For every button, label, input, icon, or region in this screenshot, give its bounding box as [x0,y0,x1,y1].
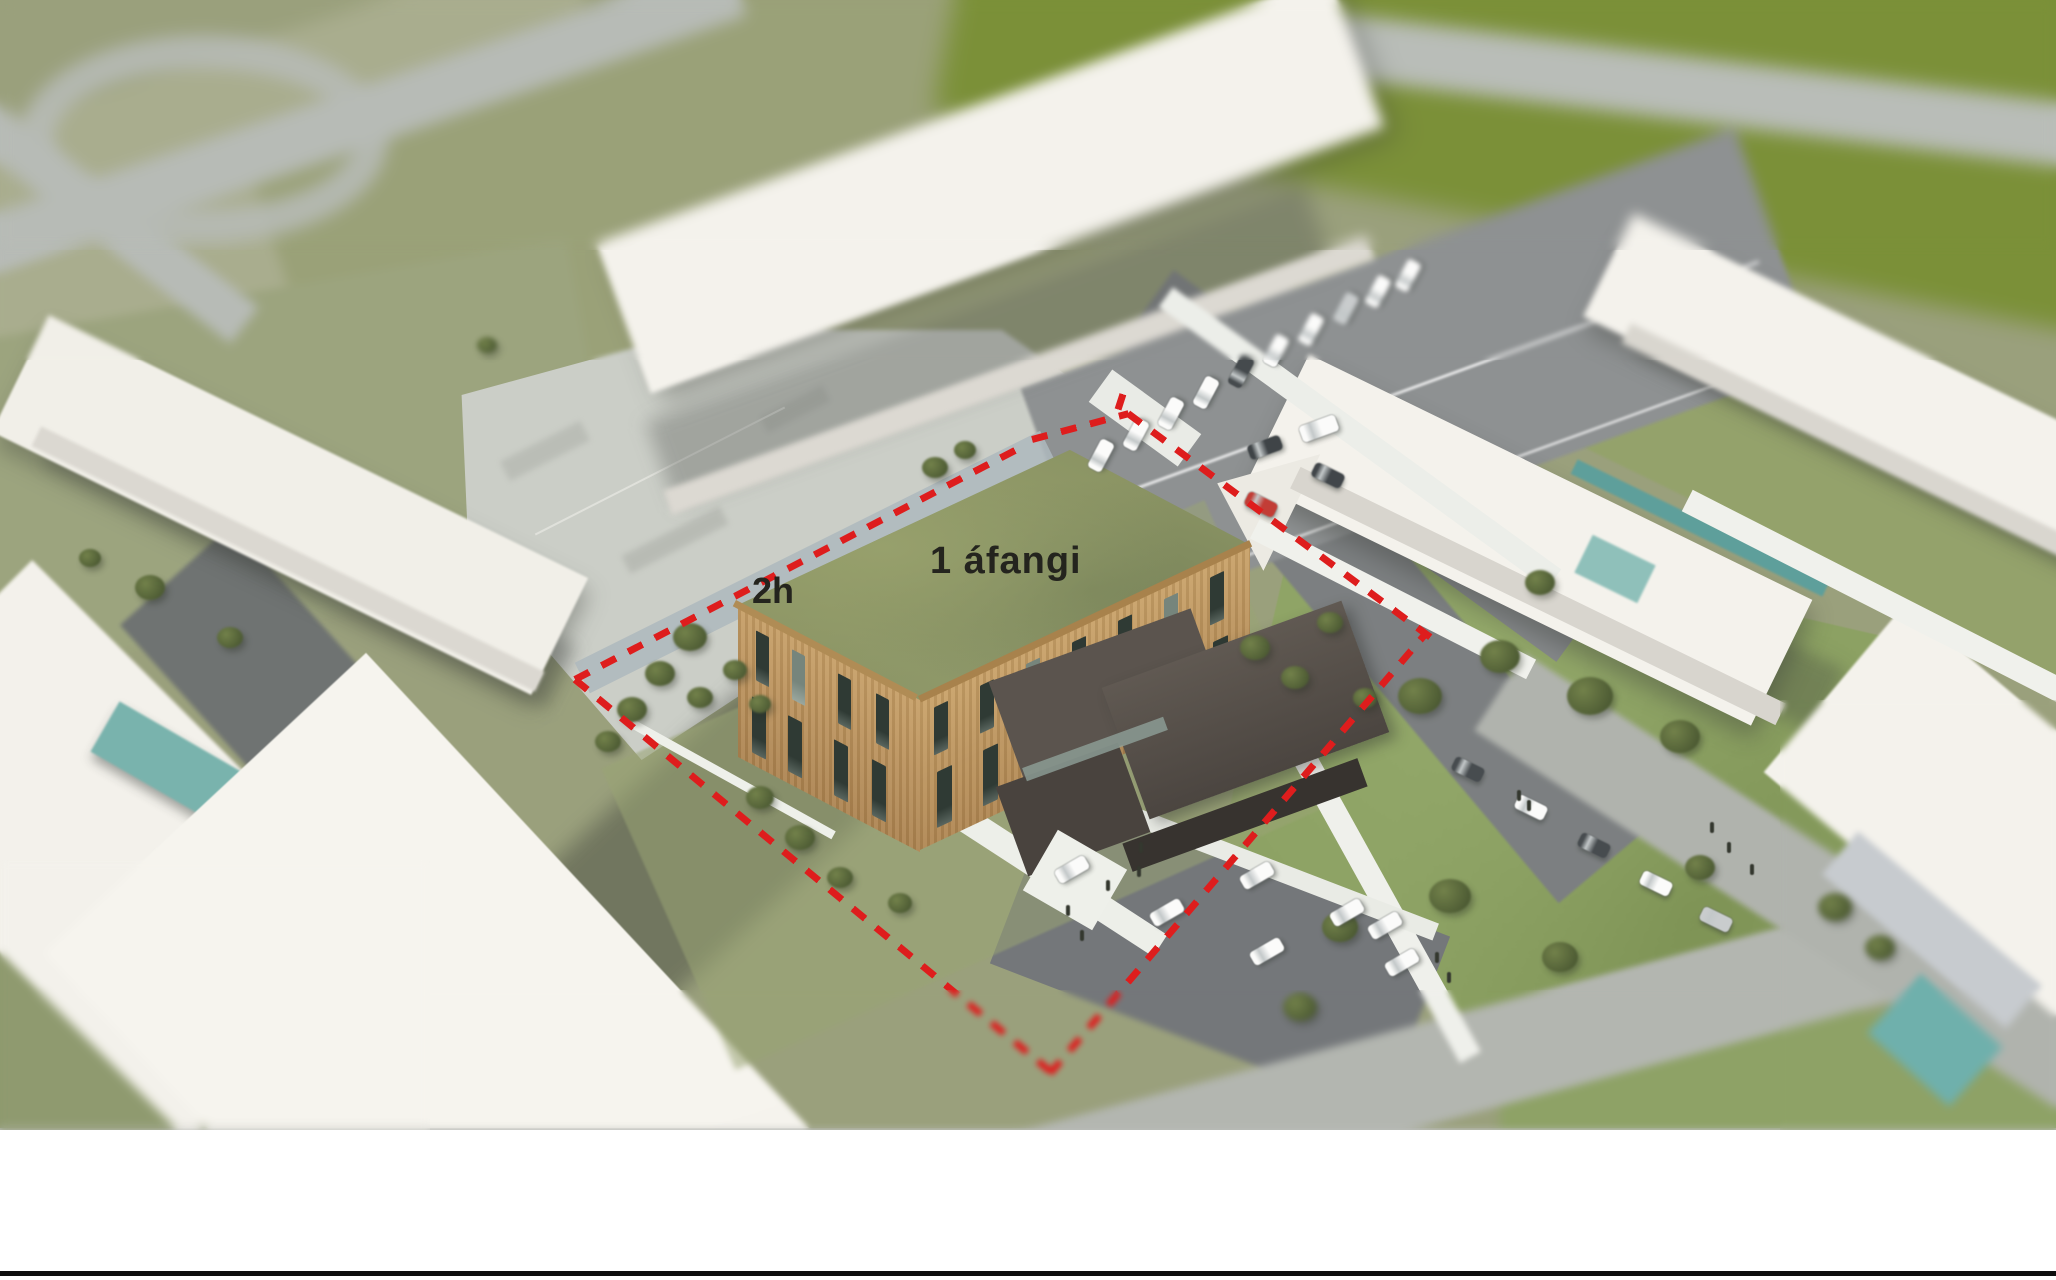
wood-window [756,630,769,687]
person [1066,905,1070,916]
wood-window [838,673,851,730]
tree [1542,942,1578,972]
person [1080,930,1084,941]
wood-window [1210,571,1224,626]
tree [1660,720,1700,753]
person [1139,842,1143,853]
blur-band-top [0,0,2056,250]
tree [922,457,948,478]
tree [1525,570,1555,595]
person [1517,790,1521,801]
architectural-presentation-page: 1 áfangi 2h 1 áfangi - 22-24 íbúðir (auk… [0,0,2056,1280]
person [1106,880,1110,891]
tree [1317,612,1343,633]
tree [645,661,675,686]
blur-corner-bottomleft [0,860,430,1130]
wood-window [872,759,886,822]
person [1710,822,1714,833]
bottom-rule [0,1271,2056,1276]
tree [687,687,713,708]
tree [888,893,912,913]
caption-bar: 1 áfangi - 22-24 íbúðir (auk geymslu) Je… [0,1130,2056,1280]
aerial-render: 1 áfangi 2h [0,0,2056,1130]
tree [595,731,621,752]
wood-window [983,743,998,806]
tree [1685,855,1715,880]
person [1447,972,1451,983]
height-label: 2h [752,570,794,612]
tree [827,867,853,888]
person [1137,866,1141,877]
tree [1429,879,1471,913]
wood-window [876,693,889,750]
tree [746,786,774,809]
tree [1567,677,1613,715]
tree [1281,666,1309,689]
phase-label: 1 áfangi [930,540,1082,583]
tree [217,627,243,648]
tree [954,441,976,459]
person [1527,800,1531,811]
blur-corner-bottomright [1780,700,2056,1130]
tree [79,549,101,567]
tree [1398,678,1442,714]
tree [723,660,747,680]
tree [749,695,771,713]
blur-band-top2 [0,250,2056,360]
tree [1240,635,1270,660]
person [1727,842,1731,853]
wood-window [788,715,802,778]
wood-window [792,649,805,706]
person [1435,952,1439,963]
wood-window [834,739,848,802]
tree [1480,640,1520,673]
wood-window [934,701,948,756]
person [1750,864,1754,875]
tree [135,575,165,600]
tree [785,825,815,850]
wood-window [937,765,952,828]
